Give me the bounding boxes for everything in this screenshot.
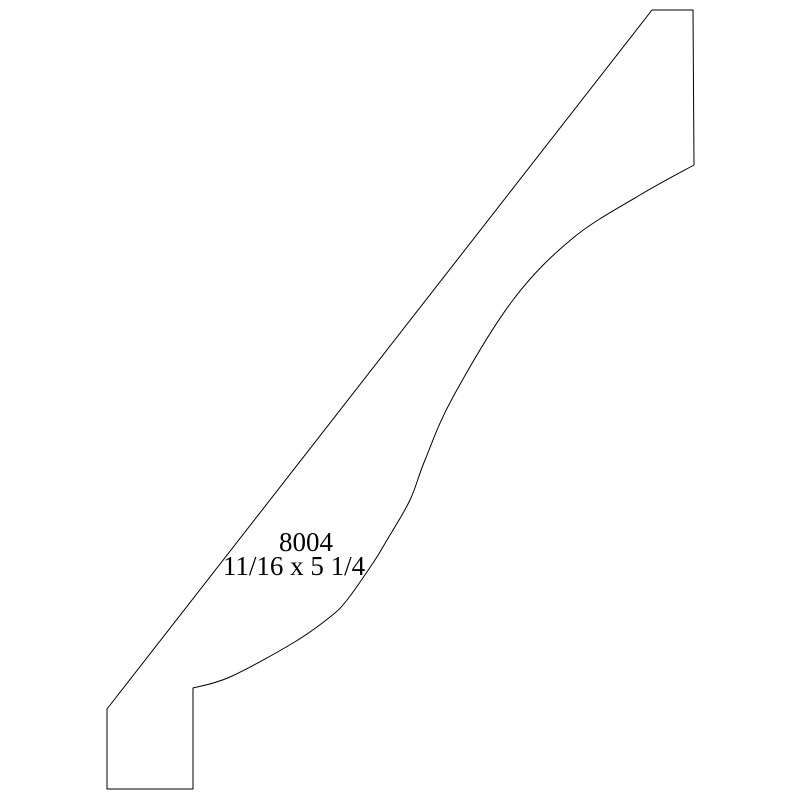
molding-outline-path	[107, 10, 694, 789]
profile-dimensions-label: 11/16 x 5 1/4	[223, 553, 365, 580]
drawing-canvas: 8004 11/16 x 5 1/4	[0, 0, 800, 800]
molding-profile-drawing	[0, 0, 800, 800]
